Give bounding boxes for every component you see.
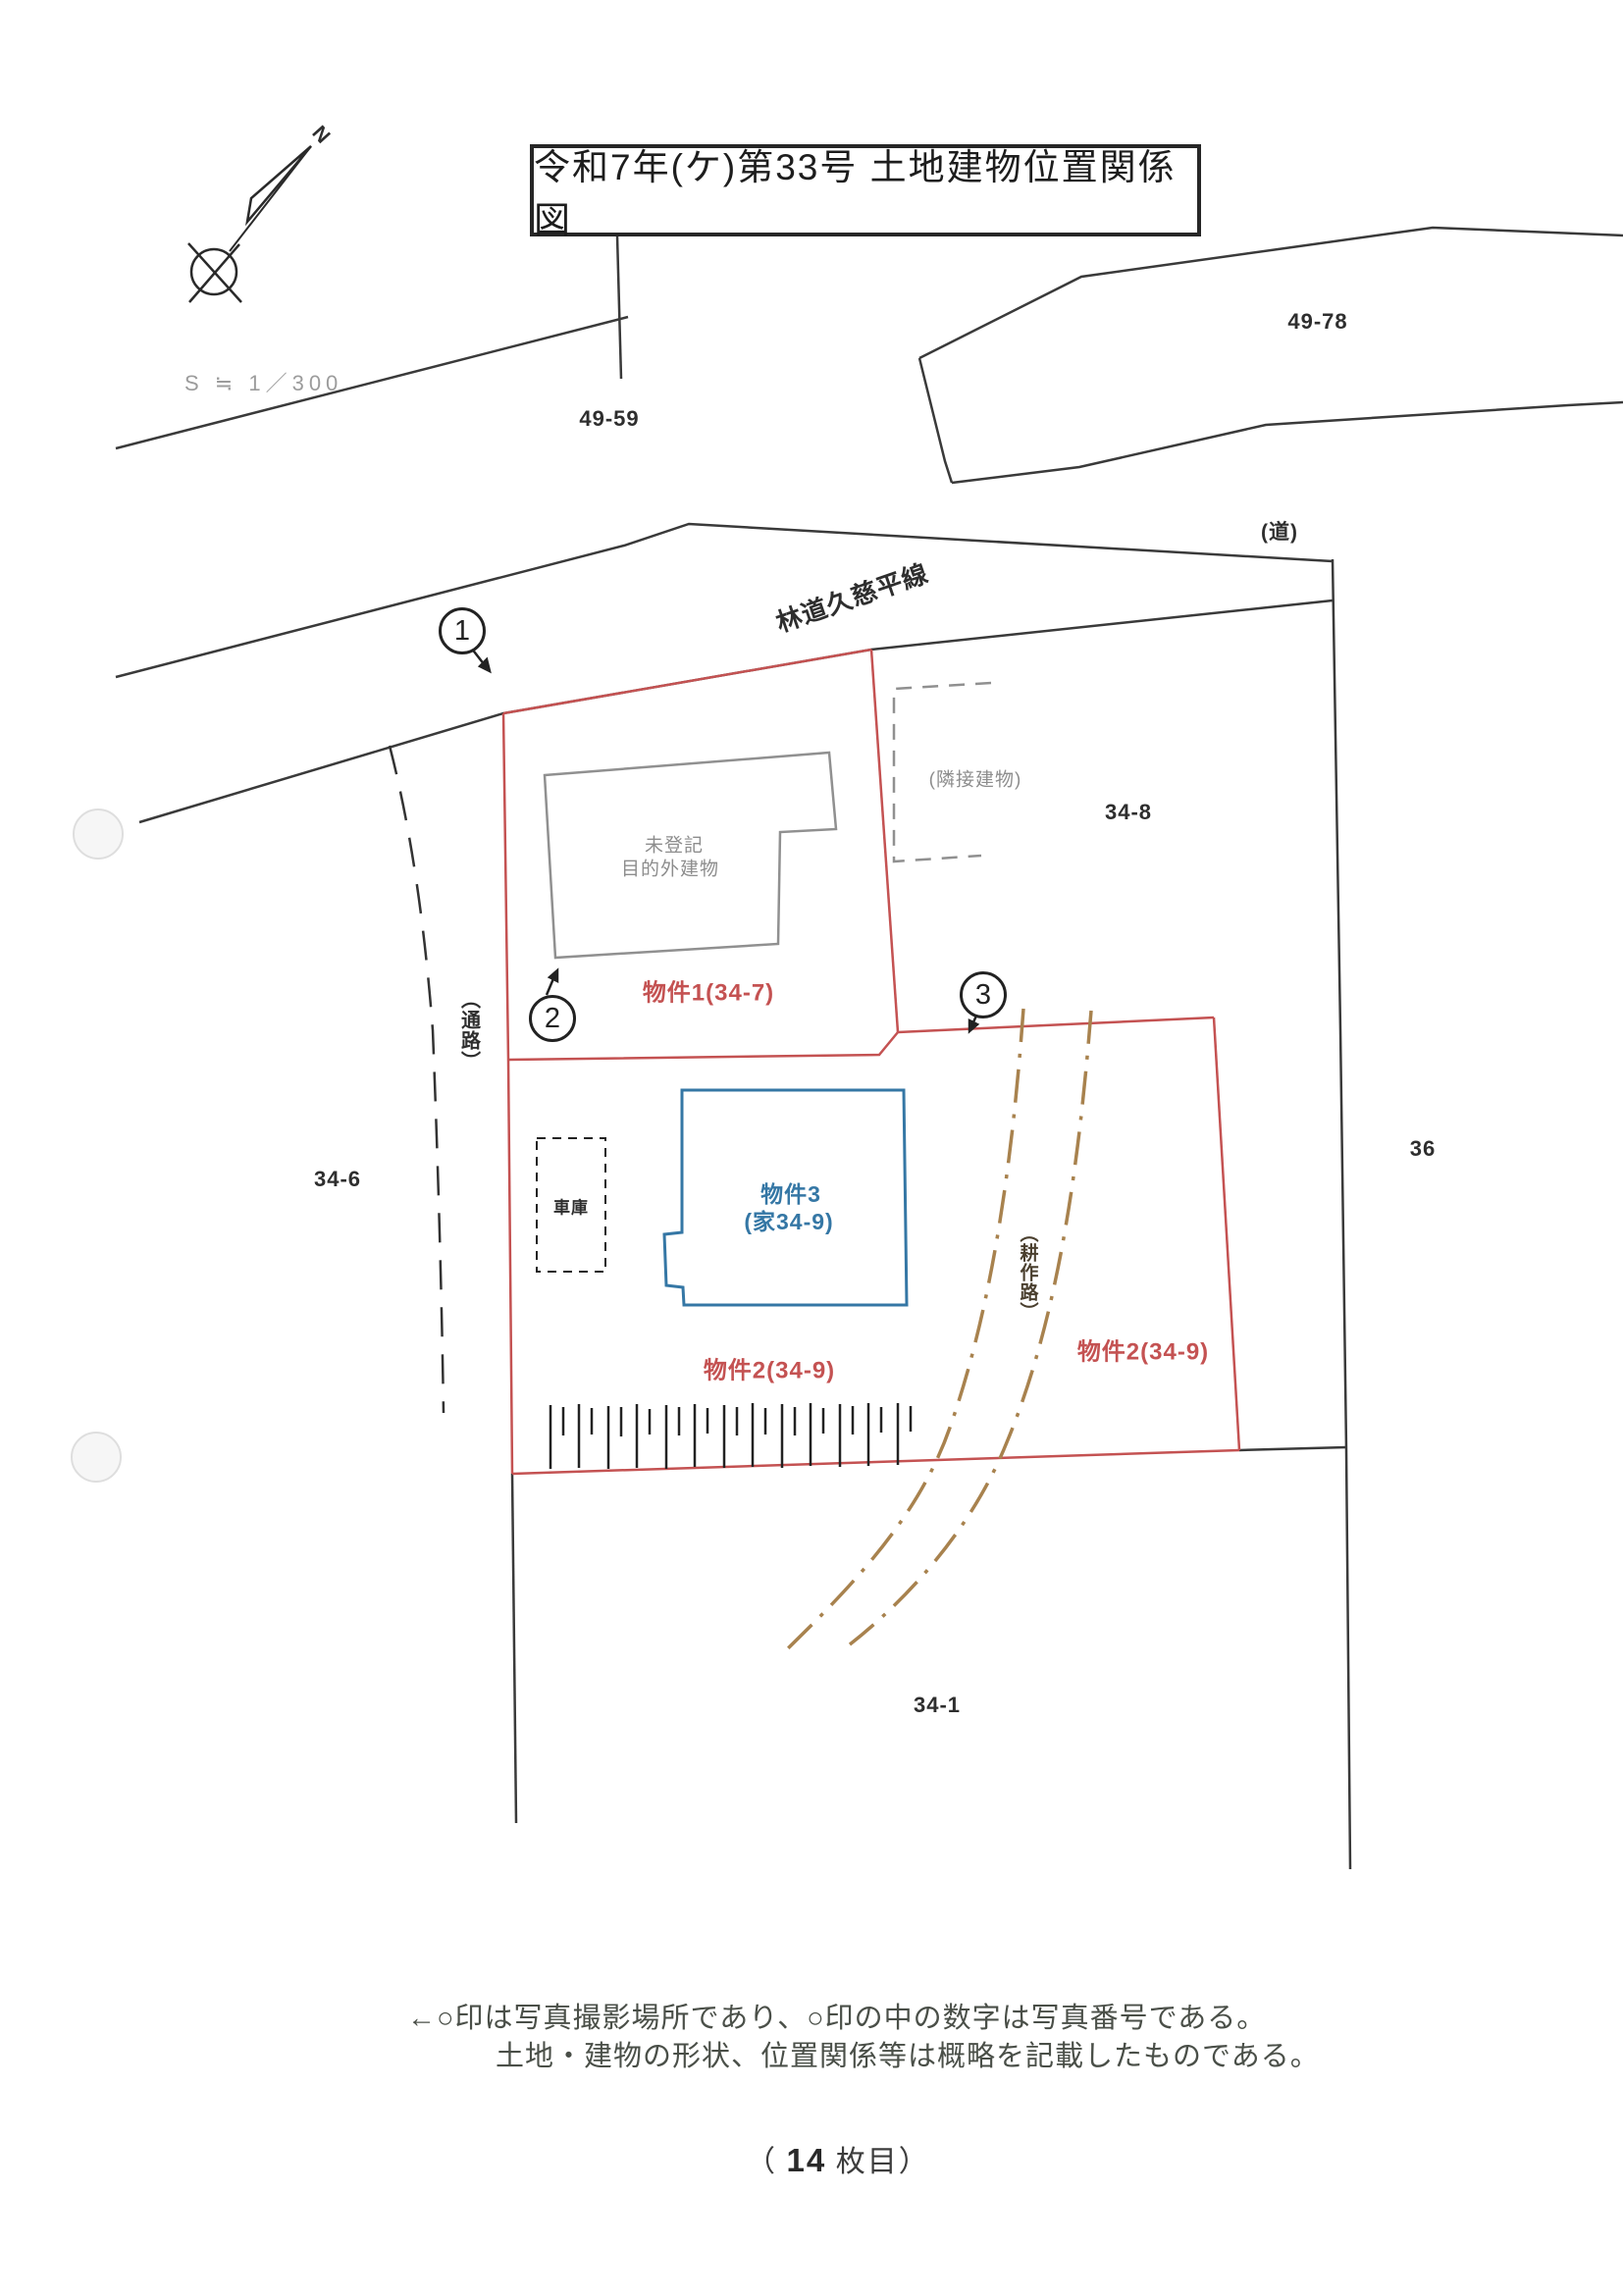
adjacent-building-label: (隣接建物) bbox=[929, 765, 1022, 792]
bukken3-label-line2: (家34-9) bbox=[744, 1203, 833, 1236]
bukken2-label-right: 物件2(34-9) bbox=[1077, 1332, 1209, 1367]
photo-marker-2: 2 bbox=[529, 995, 576, 1042]
north-arrow-icon bbox=[188, 146, 311, 302]
parcel-label-34-1: 34-1 bbox=[914, 1693, 961, 1718]
title-box: 令和7年(ケ)第33号 土地建物位置関係図 bbox=[530, 144, 1201, 236]
parcel-label-36: 36 bbox=[1410, 1136, 1436, 1162]
bukken2-south-edge bbox=[512, 1450, 1239, 1474]
parcel-label-34-6: 34-6 bbox=[314, 1167, 361, 1192]
parcel-49-59-east-boundary bbox=[617, 235, 621, 379]
road-strip-north-edge bbox=[952, 402, 1623, 483]
bottom-right-boundary bbox=[1239, 1447, 1346, 1450]
bukken2-label-left: 物件2(34-9) bbox=[704, 1351, 835, 1385]
parcel-36-west-boundary bbox=[1333, 559, 1350, 1869]
survey-document-page: 令和7年(ケ)第33号 土地建物位置関係図 N S ≒ 1／300 49-59 … bbox=[0, 0, 1623, 2296]
photo-marker-3: 3 bbox=[960, 971, 1007, 1018]
footnote-line1: ←○印は写真撮影場所であり、○印の中の数字は写真番号である。 bbox=[407, 1995, 1266, 2036]
parcel-label-34-8: 34-8 bbox=[1105, 800, 1152, 825]
photo-marker-1: 1 bbox=[439, 607, 486, 654]
unregistered-building-label-line1: 未登記 bbox=[645, 831, 704, 858]
parcel-north-boundary bbox=[139, 600, 1333, 822]
site-plan-linework bbox=[0, 0, 1623, 2296]
road-paren-label: (道) bbox=[1261, 516, 1298, 546]
scale-label: S ≒ 1／300 bbox=[184, 366, 342, 397]
passage-label: （通路） bbox=[455, 989, 484, 1071]
footnote-line2: 土地・建物の形状、位置関係等は概略を記載したものである。 bbox=[496, 2033, 1320, 2074]
garage-label: 車庫 bbox=[553, 1194, 589, 1219]
passage-dashed-line bbox=[390, 746, 444, 1413]
road-south-edge bbox=[116, 524, 1333, 677]
page-number-open: （ bbox=[746, 2146, 777, 2178]
bukken-west-edge bbox=[503, 713, 512, 1474]
bukken1-north-edge bbox=[503, 650, 871, 713]
parcel-49-78-west-boundary bbox=[919, 358, 952, 483]
parcel-label-49-59: 49-59 bbox=[579, 406, 639, 432]
parcel-49-78-north-boundary bbox=[919, 228, 1623, 358]
road-and-parcel-boundaries bbox=[116, 228, 1623, 1869]
page-title: 令和7年(ケ)第33号 土地建物位置関係図 bbox=[534, 137, 1197, 243]
bottom-left-boundary bbox=[512, 1474, 516, 1823]
farm-path-label: （耕作路） bbox=[1015, 1224, 1041, 1322]
page-number-value: 14 bbox=[787, 2142, 827, 2178]
bukken2-east-edge bbox=[1214, 1018, 1239, 1450]
fence-tick-marks bbox=[550, 1403, 911, 1469]
parcel-label-49-78: 49-78 bbox=[1287, 309, 1347, 335]
farm-path-lines bbox=[785, 1009, 1091, 1651]
page-number-close: 枚目） bbox=[836, 2146, 930, 2178]
page-number: （ 14 枚目） bbox=[746, 2137, 930, 2180]
bukken1-label: 物件1(34-7) bbox=[643, 973, 774, 1008]
unregistered-building-label-line2: 目的外建物 bbox=[621, 855, 719, 881]
bukken2-north-edge bbox=[898, 1018, 1214, 1032]
